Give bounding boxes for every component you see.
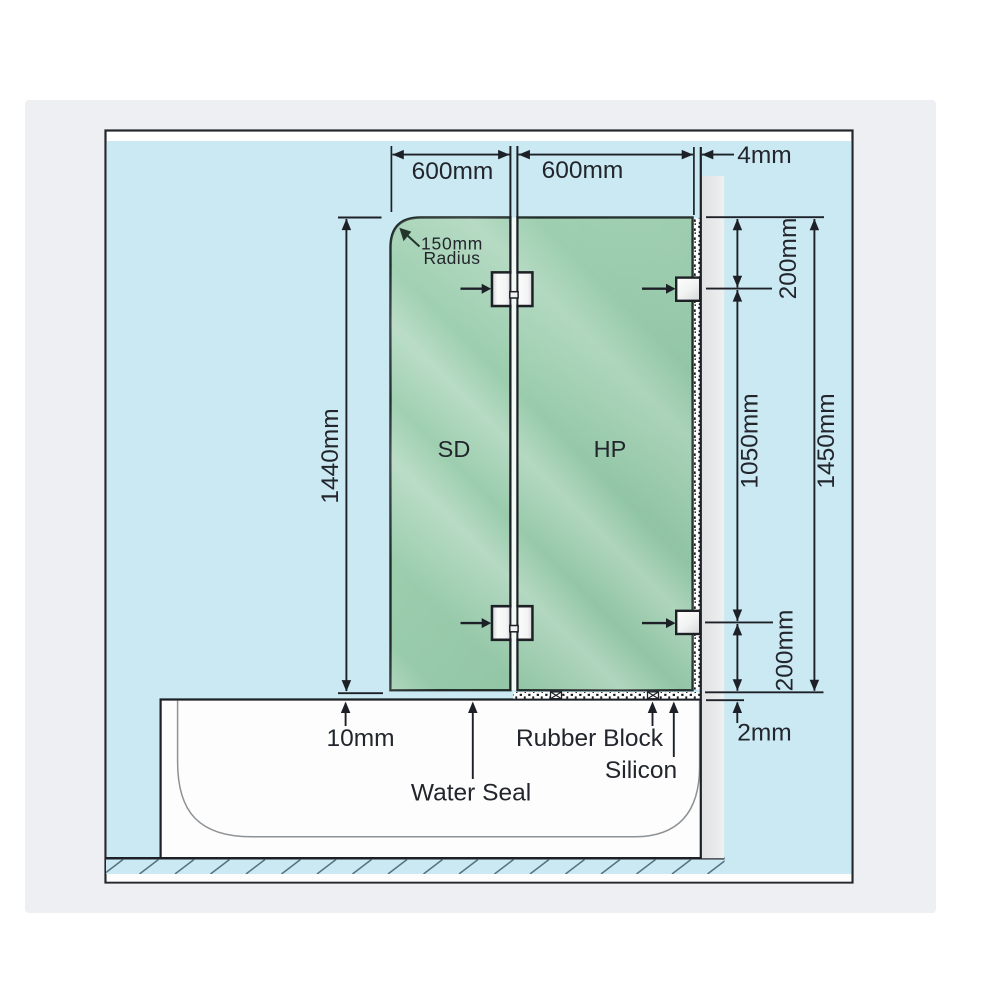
svg-text:Radius: Radius <box>424 248 481 268</box>
svg-text:Rubber Block: Rubber Block <box>516 725 664 752</box>
svg-text:SD: SD <box>438 436 471 462</box>
svg-text:1450mm: 1450mm <box>813 393 840 488</box>
svg-text:4mm: 4mm <box>737 142 791 169</box>
svg-text:200mm: 200mm <box>772 610 799 692</box>
svg-text:1440mm: 1440mm <box>317 408 344 503</box>
svg-text:Water Seal: Water Seal <box>411 780 531 807</box>
svg-text:10mm: 10mm <box>326 725 394 752</box>
svg-text:600mm: 600mm <box>542 157 624 184</box>
svg-text:200mm: 200mm <box>775 218 802 300</box>
svg-text:Silicon: Silicon <box>605 757 677 784</box>
svg-text:HP: HP <box>594 436 627 462</box>
svg-text:1050mm: 1050mm <box>736 393 763 488</box>
svg-text:600mm: 600mm <box>412 158 494 185</box>
svg-text:2mm: 2mm <box>737 720 791 747</box>
